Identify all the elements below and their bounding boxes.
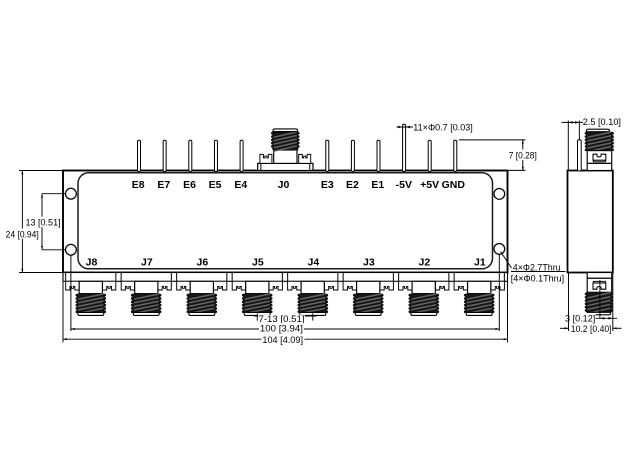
svg-text:E5: E5 xyxy=(209,179,222,191)
svg-text:J8: J8 xyxy=(86,257,98,269)
svg-text:10.2 [0.40]: 10.2 [0.40] xyxy=(571,324,612,334)
svg-text:J7: J7 xyxy=(141,257,153,269)
svg-text:E8: E8 xyxy=(132,179,145,191)
svg-text:2.5 [0.10]: 2.5 [0.10] xyxy=(583,117,621,127)
svg-text:J5: J5 xyxy=(252,257,264,269)
svg-text:J3: J3 xyxy=(363,257,375,269)
svg-text:E6: E6 xyxy=(183,179,196,191)
svg-text:E3: E3 xyxy=(321,179,334,191)
svg-text:7 [0.28]: 7 [0.28] xyxy=(509,150,537,160)
svg-text:4×Φ2.7Thru: 4×Φ2.7Thru xyxy=(513,262,561,272)
svg-text:E7: E7 xyxy=(157,179,170,191)
svg-text:11×Φ0.7 [0.03]: 11×Φ0.7 [0.03] xyxy=(413,122,473,132)
svg-text:J0: J0 xyxy=(278,179,290,191)
svg-text:-5V: -5V xyxy=(396,179,412,191)
svg-text:GND: GND xyxy=(442,179,466,191)
svg-text:13 [0.51]: 13 [0.51] xyxy=(26,218,61,228)
svg-text:[4×Φ0.1Thru]: [4×Φ0.1Thru] xyxy=(511,274,565,284)
svg-text:+5V: +5V xyxy=(420,179,439,191)
svg-text:24 [0.94]: 24 [0.94] xyxy=(6,230,39,240)
svg-text:J4: J4 xyxy=(308,257,320,269)
svg-text:E2: E2 xyxy=(346,179,359,191)
svg-text:J2: J2 xyxy=(419,257,431,269)
svg-text:104 [4.09]: 104 [4.09] xyxy=(262,335,303,345)
svg-text:3 [0.12]: 3 [0.12] xyxy=(565,313,595,323)
svg-text:E1: E1 xyxy=(371,179,384,191)
svg-text:J6: J6 xyxy=(197,257,209,269)
svg-text:7-13 [0.51]: 7-13 [0.51] xyxy=(259,314,305,324)
svg-text:J1: J1 xyxy=(474,257,486,269)
svg-text:100 [3.94]: 100 [3.94] xyxy=(260,323,303,333)
svg-text:E4: E4 xyxy=(234,179,247,191)
